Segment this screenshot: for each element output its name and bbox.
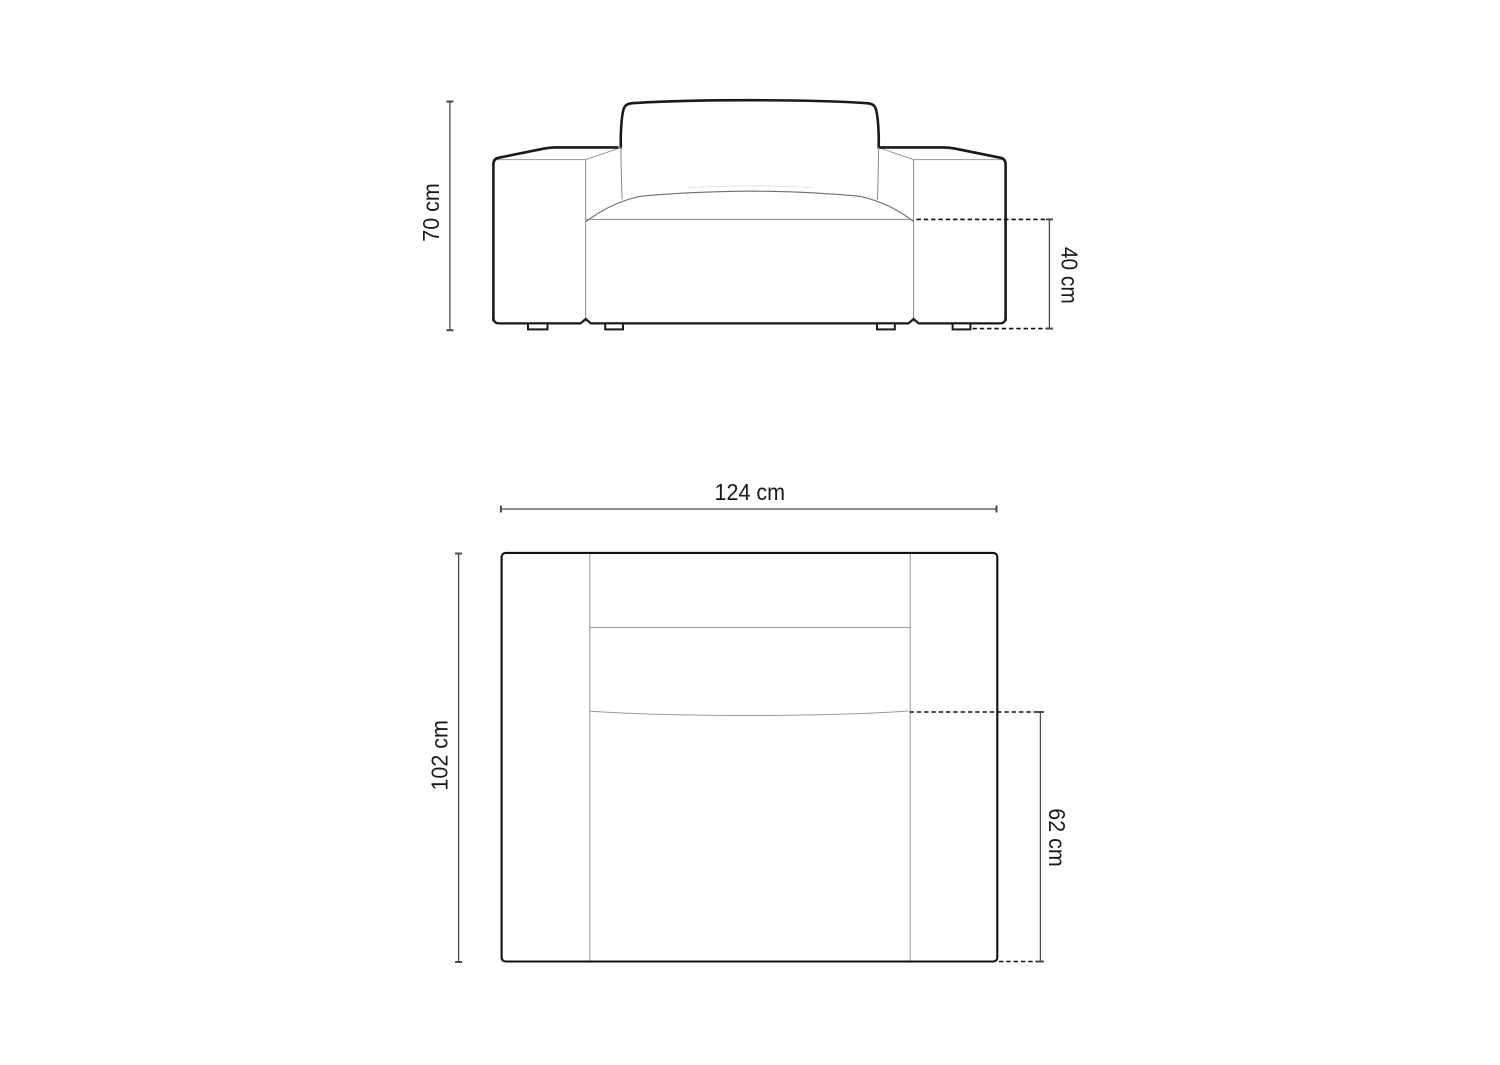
svg-text:40 cm: 40 cm xyxy=(1056,247,1082,304)
svg-text:70 cm: 70 cm xyxy=(418,183,444,242)
svg-text:102 cm: 102 cm xyxy=(427,720,453,790)
svg-text:62 cm: 62 cm xyxy=(1044,808,1070,867)
svg-text:124 cm: 124 cm xyxy=(715,479,785,505)
